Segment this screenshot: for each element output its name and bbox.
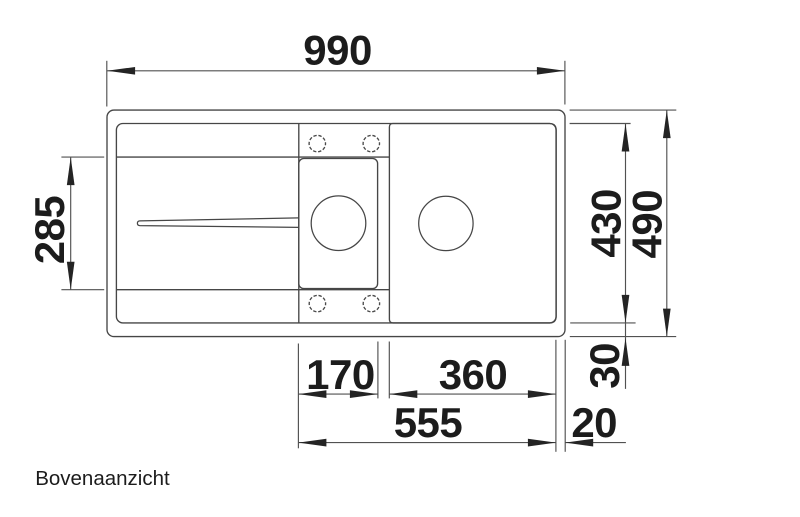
svg-text:170: 170 (306, 351, 375, 398)
svg-text:30: 30 (581, 343, 628, 389)
svg-text:555: 555 (394, 399, 463, 446)
svg-text:Bovenaanzicht: Bovenaanzicht (35, 467, 170, 490)
svg-text:285: 285 (26, 196, 73, 265)
svg-text:360: 360 (439, 351, 508, 398)
svg-text:490: 490 (624, 190, 671, 259)
svg-text:990: 990 (303, 27, 372, 74)
svg-text:20: 20 (571, 399, 617, 446)
